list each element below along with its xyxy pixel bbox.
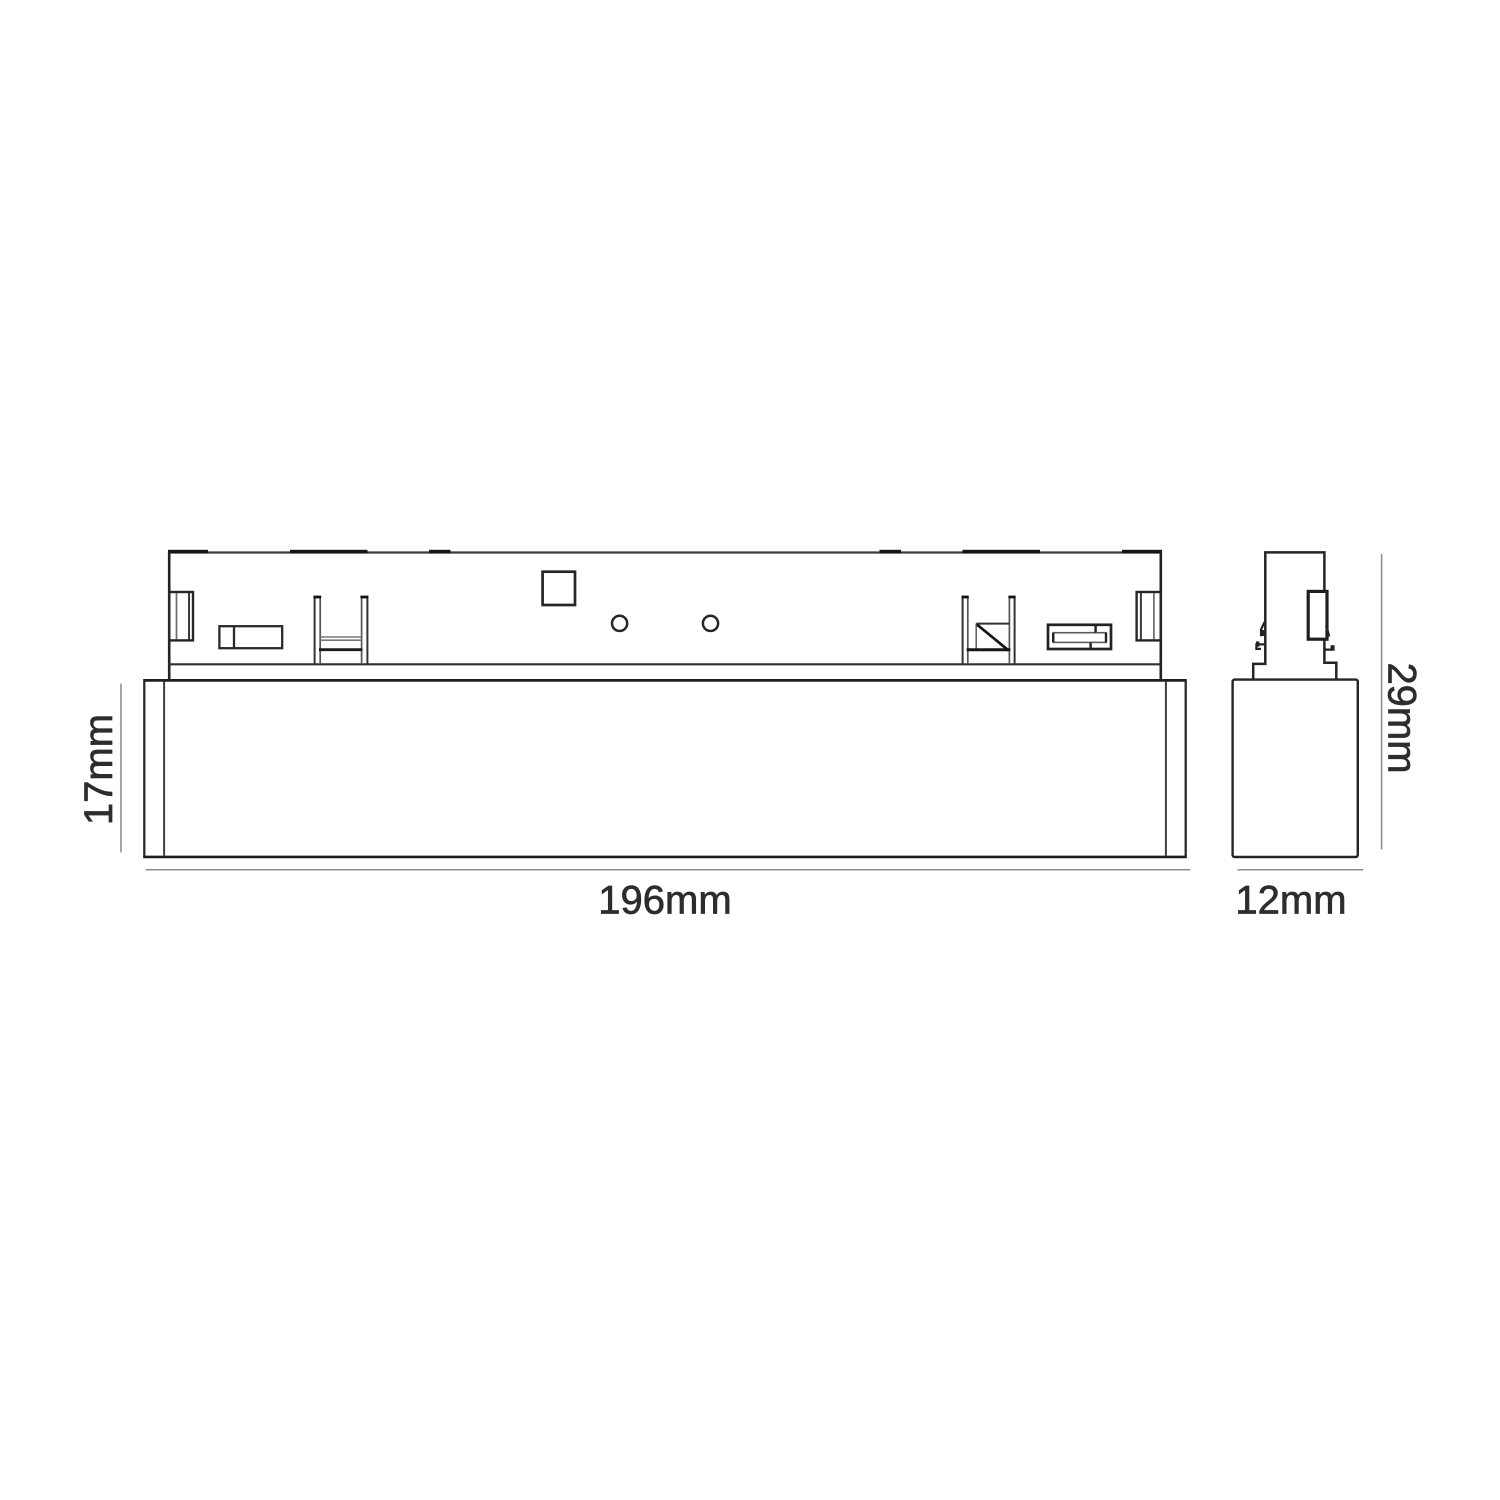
svg-text:196mm: 196mm [598, 879, 731, 923]
svg-text:29mm: 29mm [1380, 662, 1424, 773]
svg-text:17mm: 17mm [77, 714, 121, 825]
svg-text:12mm: 12mm [1235, 879, 1346, 923]
